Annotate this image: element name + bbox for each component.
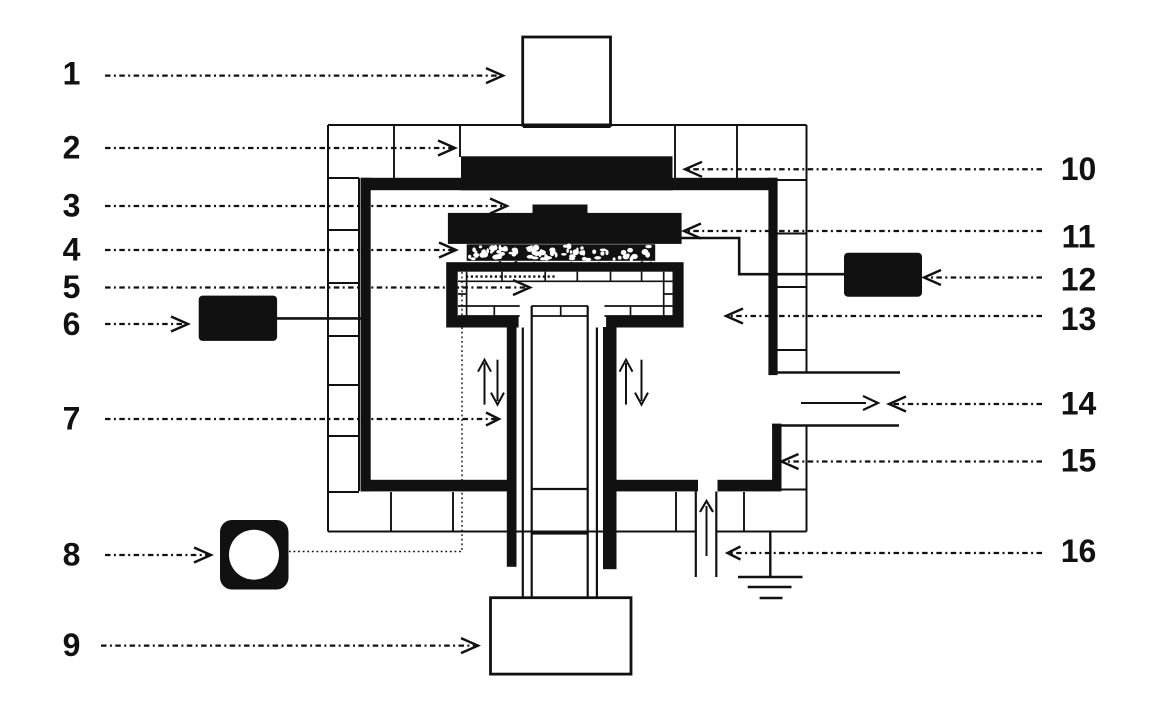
svg-text:12: 12: [1061, 262, 1097, 298]
svg-text:11: 11: [1062, 219, 1096, 255]
svg-text:2: 2: [63, 130, 81, 166]
svg-text:14: 14: [1061, 386, 1097, 422]
svg-text:16: 16: [1061, 533, 1097, 569]
svg-text:7: 7: [63, 401, 81, 437]
svg-text:10: 10: [1061, 151, 1097, 187]
svg-text:8: 8: [63, 537, 81, 573]
svg-text:3: 3: [63, 188, 81, 224]
svg-text:4: 4: [63, 232, 81, 268]
svg-text:9: 9: [63, 627, 81, 663]
svg-text:5: 5: [63, 269, 81, 305]
svg-text:15: 15: [1061, 443, 1097, 479]
svg-text:1: 1: [63, 56, 81, 92]
svg-text:6: 6: [63, 306, 81, 342]
svg-text:13: 13: [1061, 301, 1097, 337]
